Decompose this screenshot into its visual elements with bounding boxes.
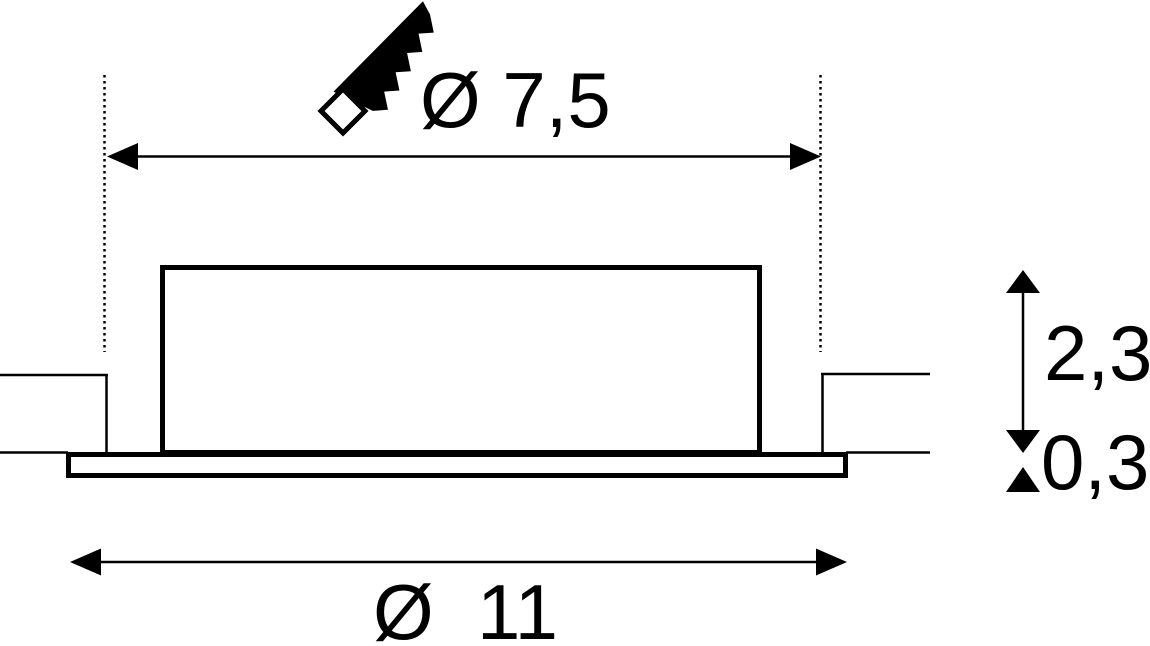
technical-drawing-canvas: Ø 7,5 2,3 0,3 Ø 11 — [0, 0, 1150, 646]
arrowhead-left-icon — [107, 143, 138, 170]
overall-diameter-label: Ø 11 — [373, 573, 558, 646]
flange-thickness-label: 0,3 — [1041, 423, 1149, 501]
recess-height-label: 2,3 — [1044, 314, 1150, 392]
ceiling-section-right — [821, 374, 930, 453]
ceiling-section-left — [0, 375, 108, 453]
arrowhead-left-icon — [70, 549, 101, 576]
arrowhead-right-icon — [816, 549, 847, 576]
arrowhead-right-icon — [790, 143, 821, 170]
arrowhead-down-icon — [1006, 430, 1040, 453]
cutout-diameter-label: Ø 7,5 — [420, 61, 611, 139]
height-dimension-lines — [1006, 270, 1040, 453]
flange-dimension-arrows — [1006, 467, 1040, 492]
fixture-body — [163, 268, 760, 453]
arrowhead-up-icon — [1006, 467, 1040, 492]
arrowhead-up-icon — [1006, 270, 1040, 293]
fixture-flange — [69, 455, 846, 476]
